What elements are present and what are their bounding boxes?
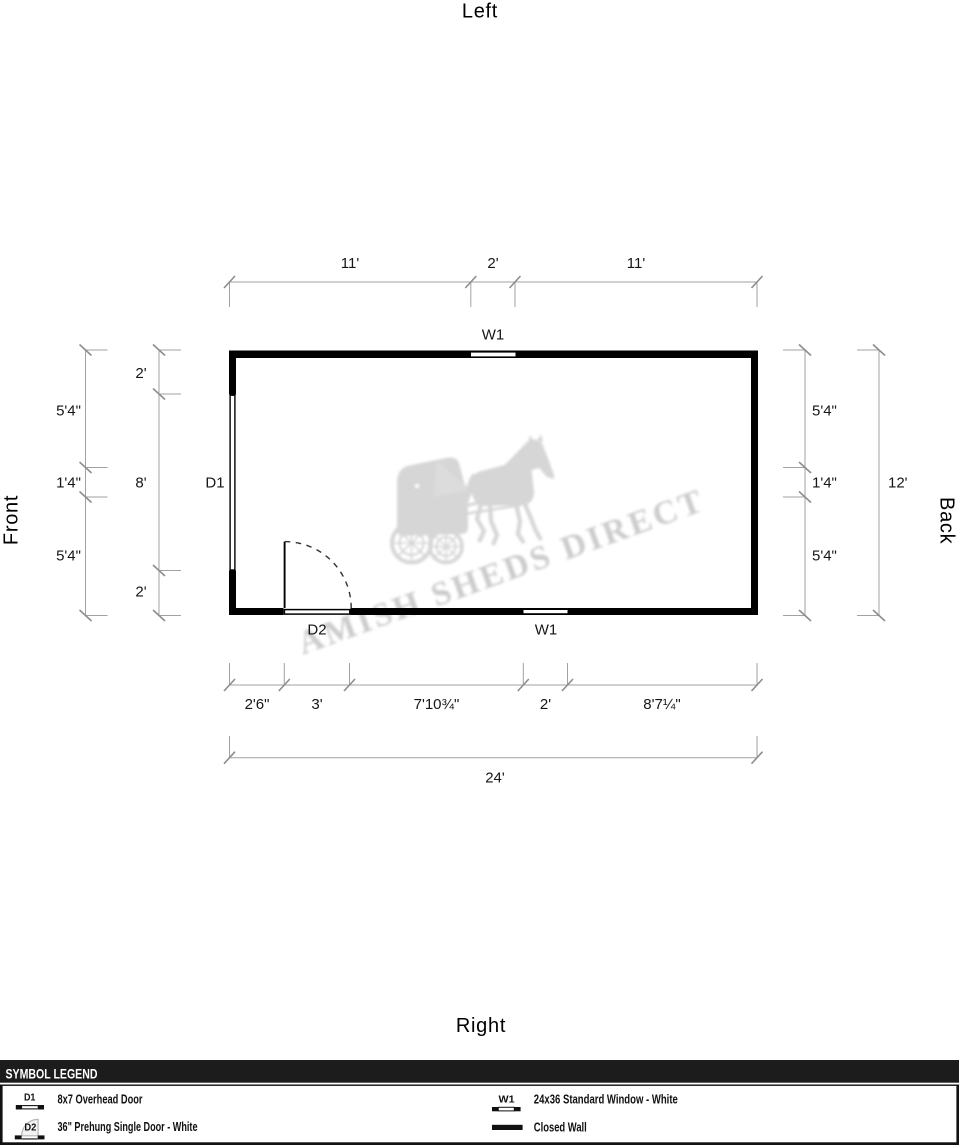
- svg-text:D1: D1: [24, 1093, 36, 1104]
- svg-text:Closed Wall: Closed Wall: [534, 1120, 587, 1135]
- svg-text:24x36 Standard Window - White: 24x36 Standard Window - White: [534, 1092, 678, 1107]
- svg-text:11': 11': [627, 255, 646, 272]
- svg-text:5'4": 5'4": [812, 547, 837, 564]
- svg-text:5'4": 5'4": [812, 402, 837, 419]
- svg-text:D1: D1: [205, 474, 224, 491]
- svg-text:D2: D2: [307, 621, 326, 638]
- svg-text:2': 2': [135, 583, 146, 600]
- svg-text:24': 24': [485, 769, 505, 786]
- svg-text:Left: Left: [462, 1, 498, 23]
- svg-text:1'4": 1'4": [56, 474, 81, 491]
- svg-text:Right: Right: [456, 1015, 506, 1037]
- svg-text:3': 3': [311, 696, 322, 713]
- svg-text:8'7¼": 8'7¼": [643, 696, 680, 713]
- svg-text:2': 2': [487, 255, 498, 272]
- svg-text:W1: W1: [535, 621, 558, 638]
- svg-text:SYMBOL LEGEND: SYMBOL LEGEND: [6, 1066, 98, 1081]
- svg-text:1'4": 1'4": [812, 474, 837, 491]
- svg-text:W1: W1: [499, 1094, 515, 1105]
- svg-text:Front: Front: [0, 495, 22, 545]
- svg-text:11': 11': [341, 255, 360, 272]
- svg-text:8x7 Overhead Door: 8x7 Overhead Door: [58, 1092, 143, 1107]
- svg-text:7'10¾": 7'10¾": [414, 696, 460, 713]
- svg-text:2'6": 2'6": [245, 696, 270, 713]
- svg-text:Back: Back: [935, 497, 957, 545]
- svg-text:36" Prehung Single Door - Whit: 36" Prehung Single Door - White: [58, 1119, 198, 1134]
- svg-text:2': 2': [540, 696, 551, 713]
- svg-text:D2: D2: [24, 1122, 36, 1133]
- svg-text:5'4": 5'4": [56, 547, 81, 564]
- svg-text:5'4": 5'4": [56, 402, 81, 419]
- svg-text:2': 2': [135, 365, 146, 382]
- svg-text:12': 12': [888, 474, 908, 491]
- svg-text:8': 8': [135, 474, 146, 491]
- svg-text:W1: W1: [482, 327, 505, 344]
